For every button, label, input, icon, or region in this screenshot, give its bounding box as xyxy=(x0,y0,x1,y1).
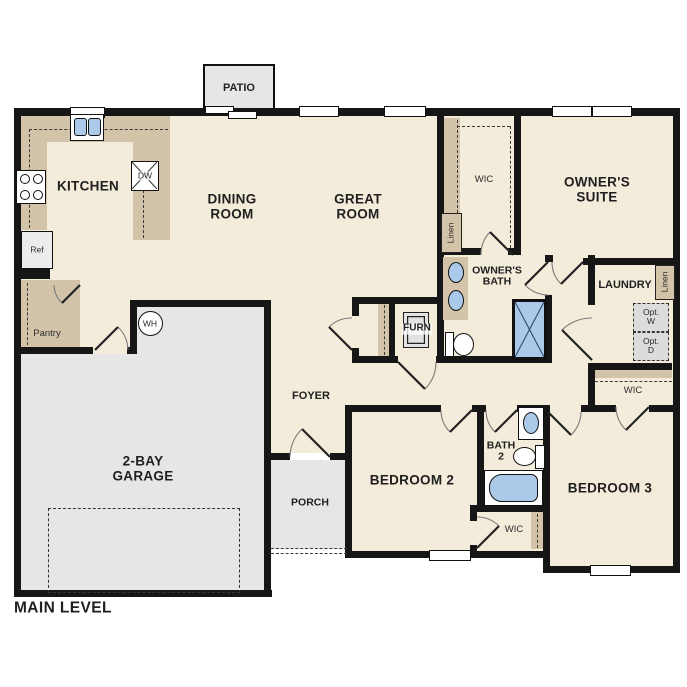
bath2-sink xyxy=(523,412,539,434)
owners-sink-1 xyxy=(448,262,464,283)
room-label-bedroom3: BEDROOM 3 xyxy=(568,482,652,497)
label-pantry: Pantry xyxy=(33,329,60,339)
door-front-entry xyxy=(290,429,330,457)
door-swings-layer xyxy=(0,0,687,687)
door-owners-bath xyxy=(525,262,548,295)
door-wic-bedroom2 xyxy=(477,517,499,548)
door-bedroom3 xyxy=(548,412,581,435)
label-opt-washer: Opt.W xyxy=(643,308,659,326)
door-bath2 xyxy=(486,410,517,432)
room-label-garage: 2-BAYGARAGE xyxy=(112,454,173,483)
floor-plan: KITCHEN DININGROOM GREATROOM OWNER'SSUIT… xyxy=(0,0,687,687)
door-pantry xyxy=(54,285,80,303)
label-dishwasher: DW xyxy=(137,171,153,180)
owners-sink-2 xyxy=(448,290,464,311)
room-label-kitchen: KITCHEN xyxy=(57,180,119,195)
room-label-wic-owners: WIC xyxy=(475,175,493,185)
bath2-toilet-bowl xyxy=(513,447,536,466)
room-label-wic-bedroom2: WIC xyxy=(505,525,523,535)
door-laundry xyxy=(562,318,592,360)
bath2-toilet-tank xyxy=(535,445,545,469)
room-label-owners-bath: OWNER'SBATH xyxy=(472,266,522,289)
label-refrigerator: Ref xyxy=(30,245,43,254)
shower xyxy=(512,299,547,360)
room-label-wic-bedroom3: WIC xyxy=(624,386,642,396)
room-label-owners-suite: OWNER'SSUITE xyxy=(564,175,630,204)
kitchen-sink xyxy=(70,114,104,141)
label-linen-owners: Linen xyxy=(446,223,455,244)
room-label-dining-room: DININGROOM xyxy=(207,192,256,221)
door-garage-entry xyxy=(95,327,128,350)
stove xyxy=(16,170,46,204)
door-furnace-closet xyxy=(398,362,436,389)
owners-toilet-bowl xyxy=(453,333,474,356)
room-label-patio: PATIO xyxy=(223,83,255,95)
room-label-bath2: BATH2 xyxy=(487,441,515,464)
door-bedroom2 xyxy=(441,410,472,432)
plan-title: MAIN LEVEL xyxy=(14,601,112,618)
label-furnace: FURN xyxy=(402,324,432,335)
label-opt-dryer: Opt.D xyxy=(643,337,659,355)
door-owners-suite xyxy=(552,262,583,284)
door-owners-wic xyxy=(481,232,513,255)
room-label-porch: PORCH xyxy=(291,497,329,508)
door-wic-bedroom3 xyxy=(616,407,649,430)
label-linen-laundry: Linen xyxy=(660,272,669,293)
label-water-heater: WH xyxy=(143,319,157,328)
room-label-foyer: FOYER xyxy=(292,391,330,403)
room-label-laundry: LAUNDRY xyxy=(598,280,651,292)
room-label-great-room: GREATROOM xyxy=(334,192,382,221)
bathtub-basin xyxy=(489,474,538,502)
room-label-bedroom2: BEDROOM 2 xyxy=(370,474,454,489)
door-coat-closet xyxy=(329,318,352,350)
